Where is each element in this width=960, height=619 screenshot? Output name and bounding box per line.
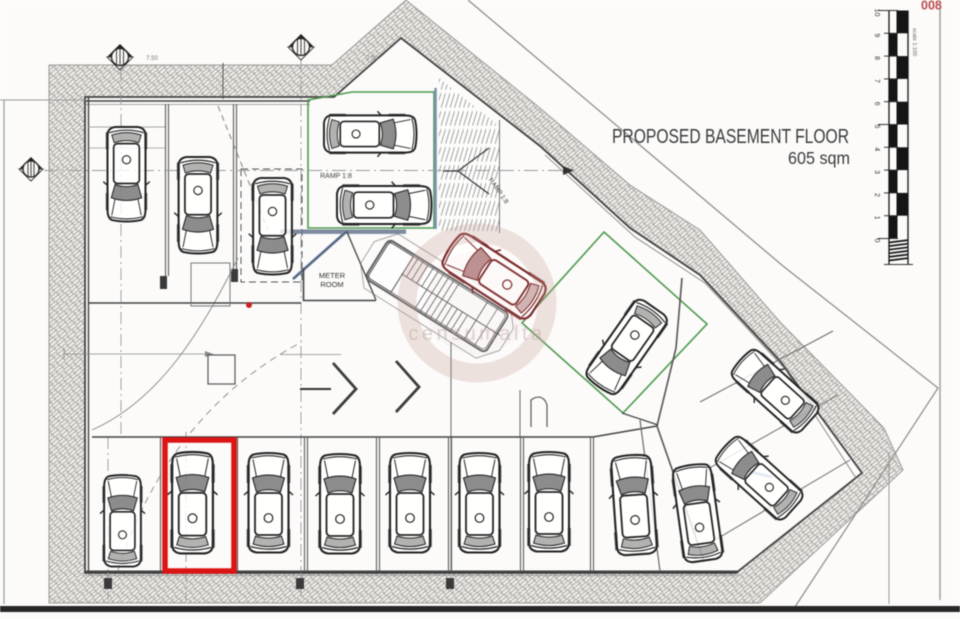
svg-text:6: 6: [873, 102, 880, 106]
svg-text:scale 1:100: scale 1:100: [911, 28, 917, 56]
svg-text:7: 7: [873, 79, 880, 83]
svg-text:10: 10: [873, 9, 880, 17]
svg-text:RAMP 1:8: RAMP 1:8: [320, 173, 352, 180]
svg-text:2: 2: [873, 193, 880, 197]
svg-text:9: 9: [873, 33, 880, 37]
svg-text:605 sqm: 605 sqm: [788, 148, 850, 168]
svg-text:censumalta: censumalta: [408, 323, 545, 345]
svg-text:7.50: 7.50: [366, 56, 378, 62]
svg-text:METER: METER: [319, 271, 346, 280]
svg-text:008: 008: [921, 0, 942, 13]
svg-text:7.50: 7.50: [146, 56, 158, 62]
svg-text:8: 8: [873, 56, 880, 60]
svg-text:1: 1: [873, 216, 880, 220]
svg-text:3: 3: [873, 170, 880, 174]
svg-text:4: 4: [873, 147, 880, 151]
svg-text:PROPOSED BASEMENT FLOOR: PROPOSED BASEMENT FLOOR: [612, 126, 849, 148]
svg-text:0: 0: [873, 239, 880, 243]
svg-text:ROOM: ROOM: [320, 280, 343, 289]
svg-text:5: 5: [873, 125, 880, 129]
